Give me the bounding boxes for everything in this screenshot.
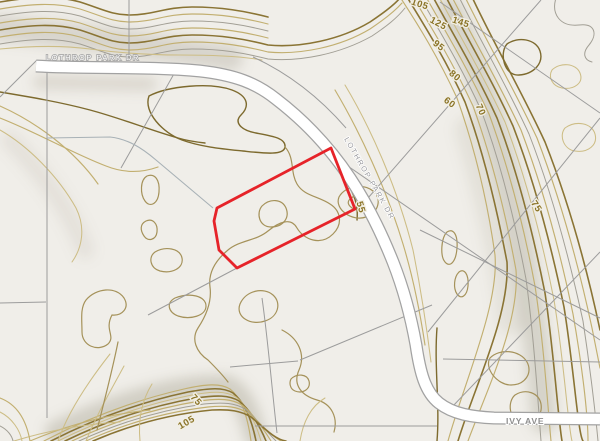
road-name-label: LOTHROP PARK DR	[46, 53, 140, 62]
map-view[interactable]: LOTHROP PARK DRLOTHROP PARK DRIVY AVE105…	[0, 0, 600, 441]
road-name-label: IVY AVE	[506, 416, 544, 426]
map-path	[40, 82, 150, 84]
map-canvas: LOTHROP PARK DRLOTHROP PARK DRIVY AVE105…	[0, 0, 600, 441]
